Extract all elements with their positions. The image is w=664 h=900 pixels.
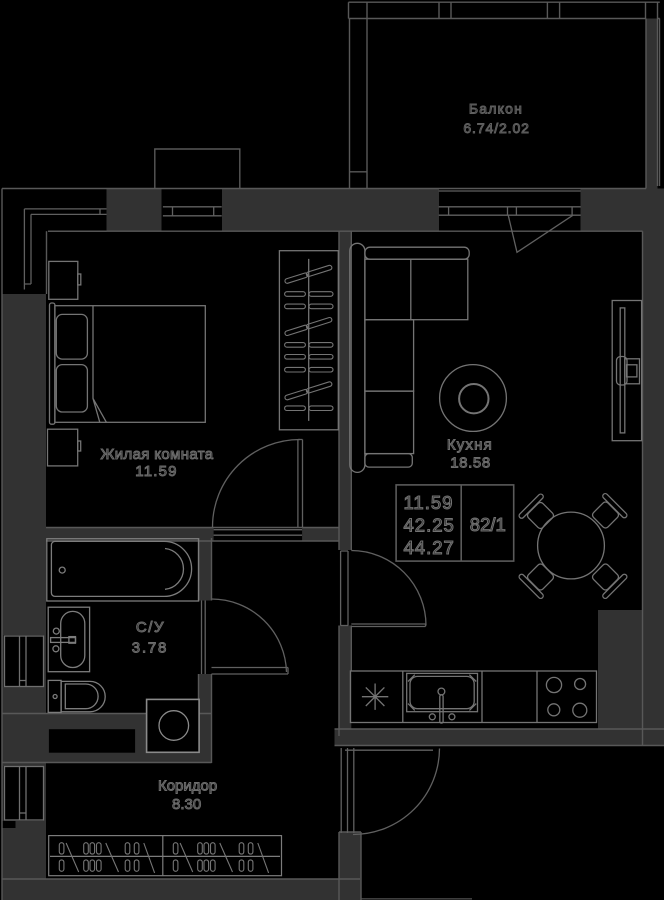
- svg-text:6.74/2.02: 6.74/2.02: [463, 120, 530, 136]
- svg-text:3.78: 3.78: [132, 640, 168, 657]
- svg-text:42.25: 42.25: [404, 515, 455, 536]
- svg-text:11.59: 11.59: [135, 463, 177, 480]
- svg-text:Жилая комната: Жилая комната: [101, 446, 214, 463]
- svg-text:11.59: 11.59: [404, 492, 454, 513]
- svg-text:Коридор: Коридор: [158, 778, 217, 795]
- svg-text:Кухня: Кухня: [447, 437, 493, 454]
- svg-text:С/У: С/У: [136, 619, 165, 636]
- svg-text:18.58: 18.58: [450, 455, 491, 472]
- svg-text:Балкон: Балкон: [469, 101, 523, 117]
- svg-text:44.27: 44.27: [404, 537, 455, 558]
- svg-text:82/1: 82/1: [470, 514, 506, 535]
- svg-text:8.30: 8.30: [172, 796, 201, 813]
